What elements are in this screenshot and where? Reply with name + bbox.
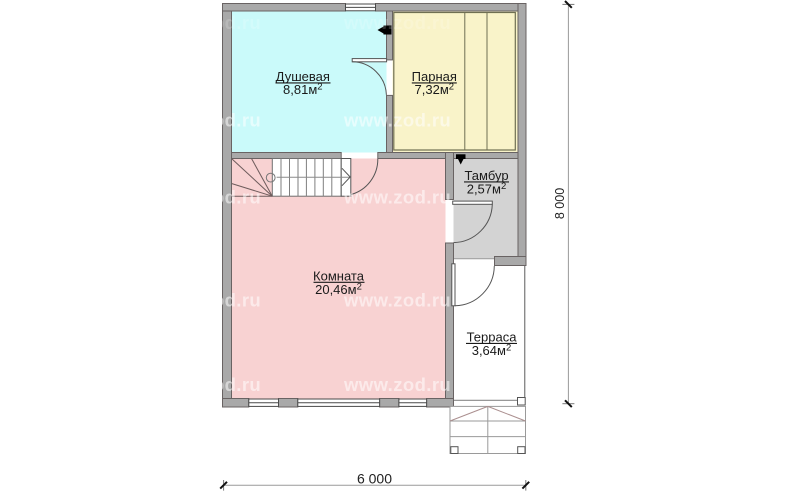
svg-text:6 000: 6 000 xyxy=(357,471,392,487)
svg-text:2,57м2: 2,57м2 xyxy=(467,181,507,197)
svg-text:8 000: 8 000 xyxy=(553,188,567,219)
svg-text:www.zod.ru: www.zod.ru xyxy=(343,374,451,395)
svg-text:www.zod.ru: www.zod.ru xyxy=(343,290,451,311)
svg-text:20,46м2: 20,46м2 xyxy=(315,281,362,297)
svg-text:8,81м2: 8,81м2 xyxy=(283,82,323,98)
svg-text:www.zod.ru: www.zod.ru xyxy=(153,109,261,130)
svg-text:www.zod.ru: www.zod.ru xyxy=(153,187,261,208)
svg-text:7,32м2: 7,32м2 xyxy=(415,82,455,98)
svg-text:3,64м2: 3,64м2 xyxy=(472,343,512,359)
svg-text:www.zod.ru: www.zod.ru xyxy=(343,109,451,130)
svg-text:www.zod.ru: www.zod.ru xyxy=(153,12,261,33)
svg-text:www.zod.ru: www.zod.ru xyxy=(153,290,261,311)
svg-text:www.zod.ru: www.zod.ru xyxy=(153,374,261,395)
svg-text:www.zod.ru: www.zod.ru xyxy=(343,12,451,33)
svg-text:www.zod.ru: www.zod.ru xyxy=(343,187,451,208)
